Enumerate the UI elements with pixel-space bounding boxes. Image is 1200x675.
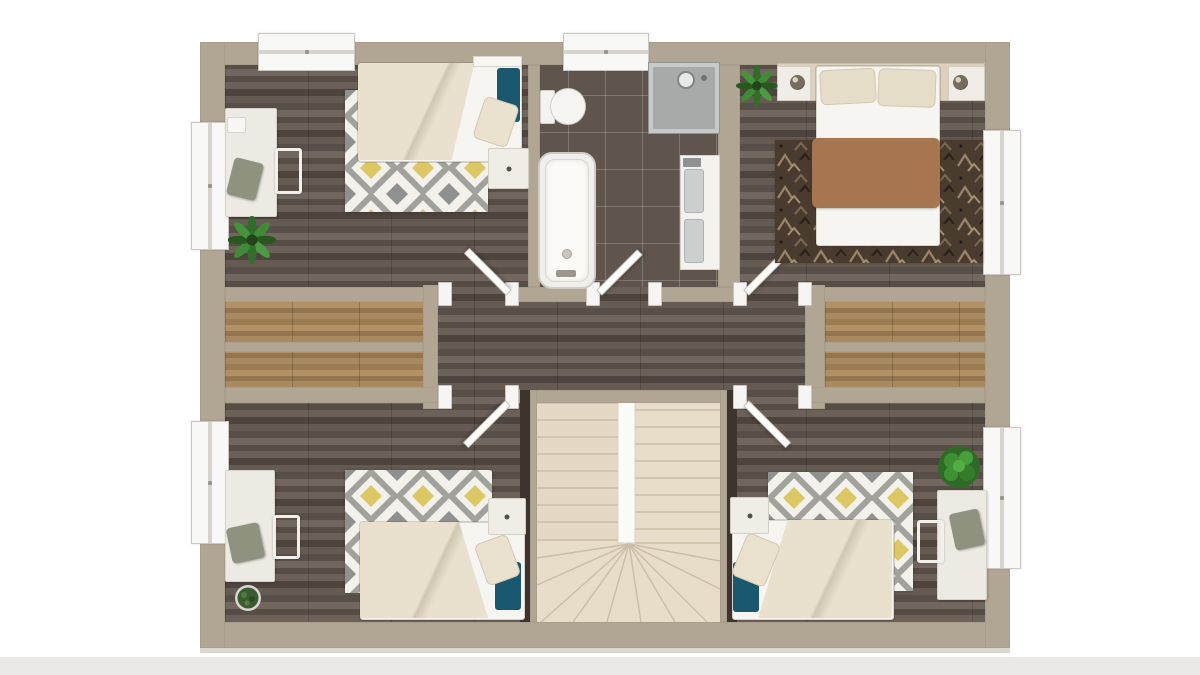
toilet-bowl [550,88,586,125]
vanity-counter-accent [683,158,701,167]
nightstand [488,148,529,189]
window-top-bedroom [258,33,355,71]
door-jamb [438,385,452,409]
window-right-lower [983,427,1021,569]
door-jamb [438,282,452,306]
north-wall-bottom-left [225,387,438,403]
nightstand [730,497,769,534]
storage-left-mid-wall [225,342,423,352]
floor-plant [228,216,276,264]
door-jamb [798,282,812,306]
pillow [877,68,936,108]
south-wall-segment-a [225,287,448,302]
door-jamb [798,385,812,409]
vanity-unit [680,155,720,270]
outer-wall-bottom [200,622,1010,648]
window-latch [305,50,309,54]
bush-plant [936,444,982,490]
bathtub [538,152,596,289]
floor-plan [200,42,1010,648]
north-wall-bottom-right [810,387,985,403]
window-latch [604,50,608,54]
south-wall-segment-d [800,287,985,302]
vanity-basin [684,219,704,263]
shower-head [677,71,695,89]
door-jamb [733,282,747,306]
desk-chair-seat [226,522,266,564]
screenshot-canvas [0,0,1200,675]
nightstand [488,498,526,535]
shower-valve [701,75,707,81]
drawer-knob [747,513,752,518]
storage-right-mid-wall [825,342,985,352]
storage-strip-right-lower [825,352,985,387]
drawer-knob [505,514,510,519]
south-wall-segment-c [648,287,745,302]
table-lamp [953,75,968,90]
drawer-knob [506,166,511,171]
window-bathroom [563,33,649,71]
door-jamb [648,282,662,306]
wall-shelf [473,56,522,67]
window-latch [1000,201,1004,205]
shower-enclosure [648,62,720,134]
desk-chair-frame [917,520,944,563]
bathtub-drain [562,249,572,259]
window-left-upper [191,122,229,250]
potted-plant [234,584,262,612]
page-bottom-band [0,657,1200,675]
pillow [819,68,877,106]
plant [733,62,781,110]
desk-item [227,117,246,133]
brown-throw-blanket [812,138,940,208]
table-lamp [790,75,805,90]
window-right-upper [983,130,1021,275]
storage-strip-left-lower [225,352,423,387]
desk-chair-frame [273,515,300,559]
plan-drop-shadow [200,648,1010,653]
bathtub-basin [545,159,589,282]
staircase [537,393,720,622]
stairwell-edge-right [720,390,727,622]
bathtub-faucet [556,270,576,277]
window-latch [208,184,212,188]
stair-centre-void [618,393,635,543]
stairwell-top-wall [517,390,740,403]
stairwell-edge-left [530,390,537,622]
window-left-lower [191,421,229,544]
desk-chair-frame [275,148,302,194]
window-latch [208,481,212,485]
window-latch [1000,496,1004,500]
storage-strip-right-upper [825,302,985,342]
vanity-basin [684,169,704,213]
storage-strip-left-upper [225,302,423,342]
